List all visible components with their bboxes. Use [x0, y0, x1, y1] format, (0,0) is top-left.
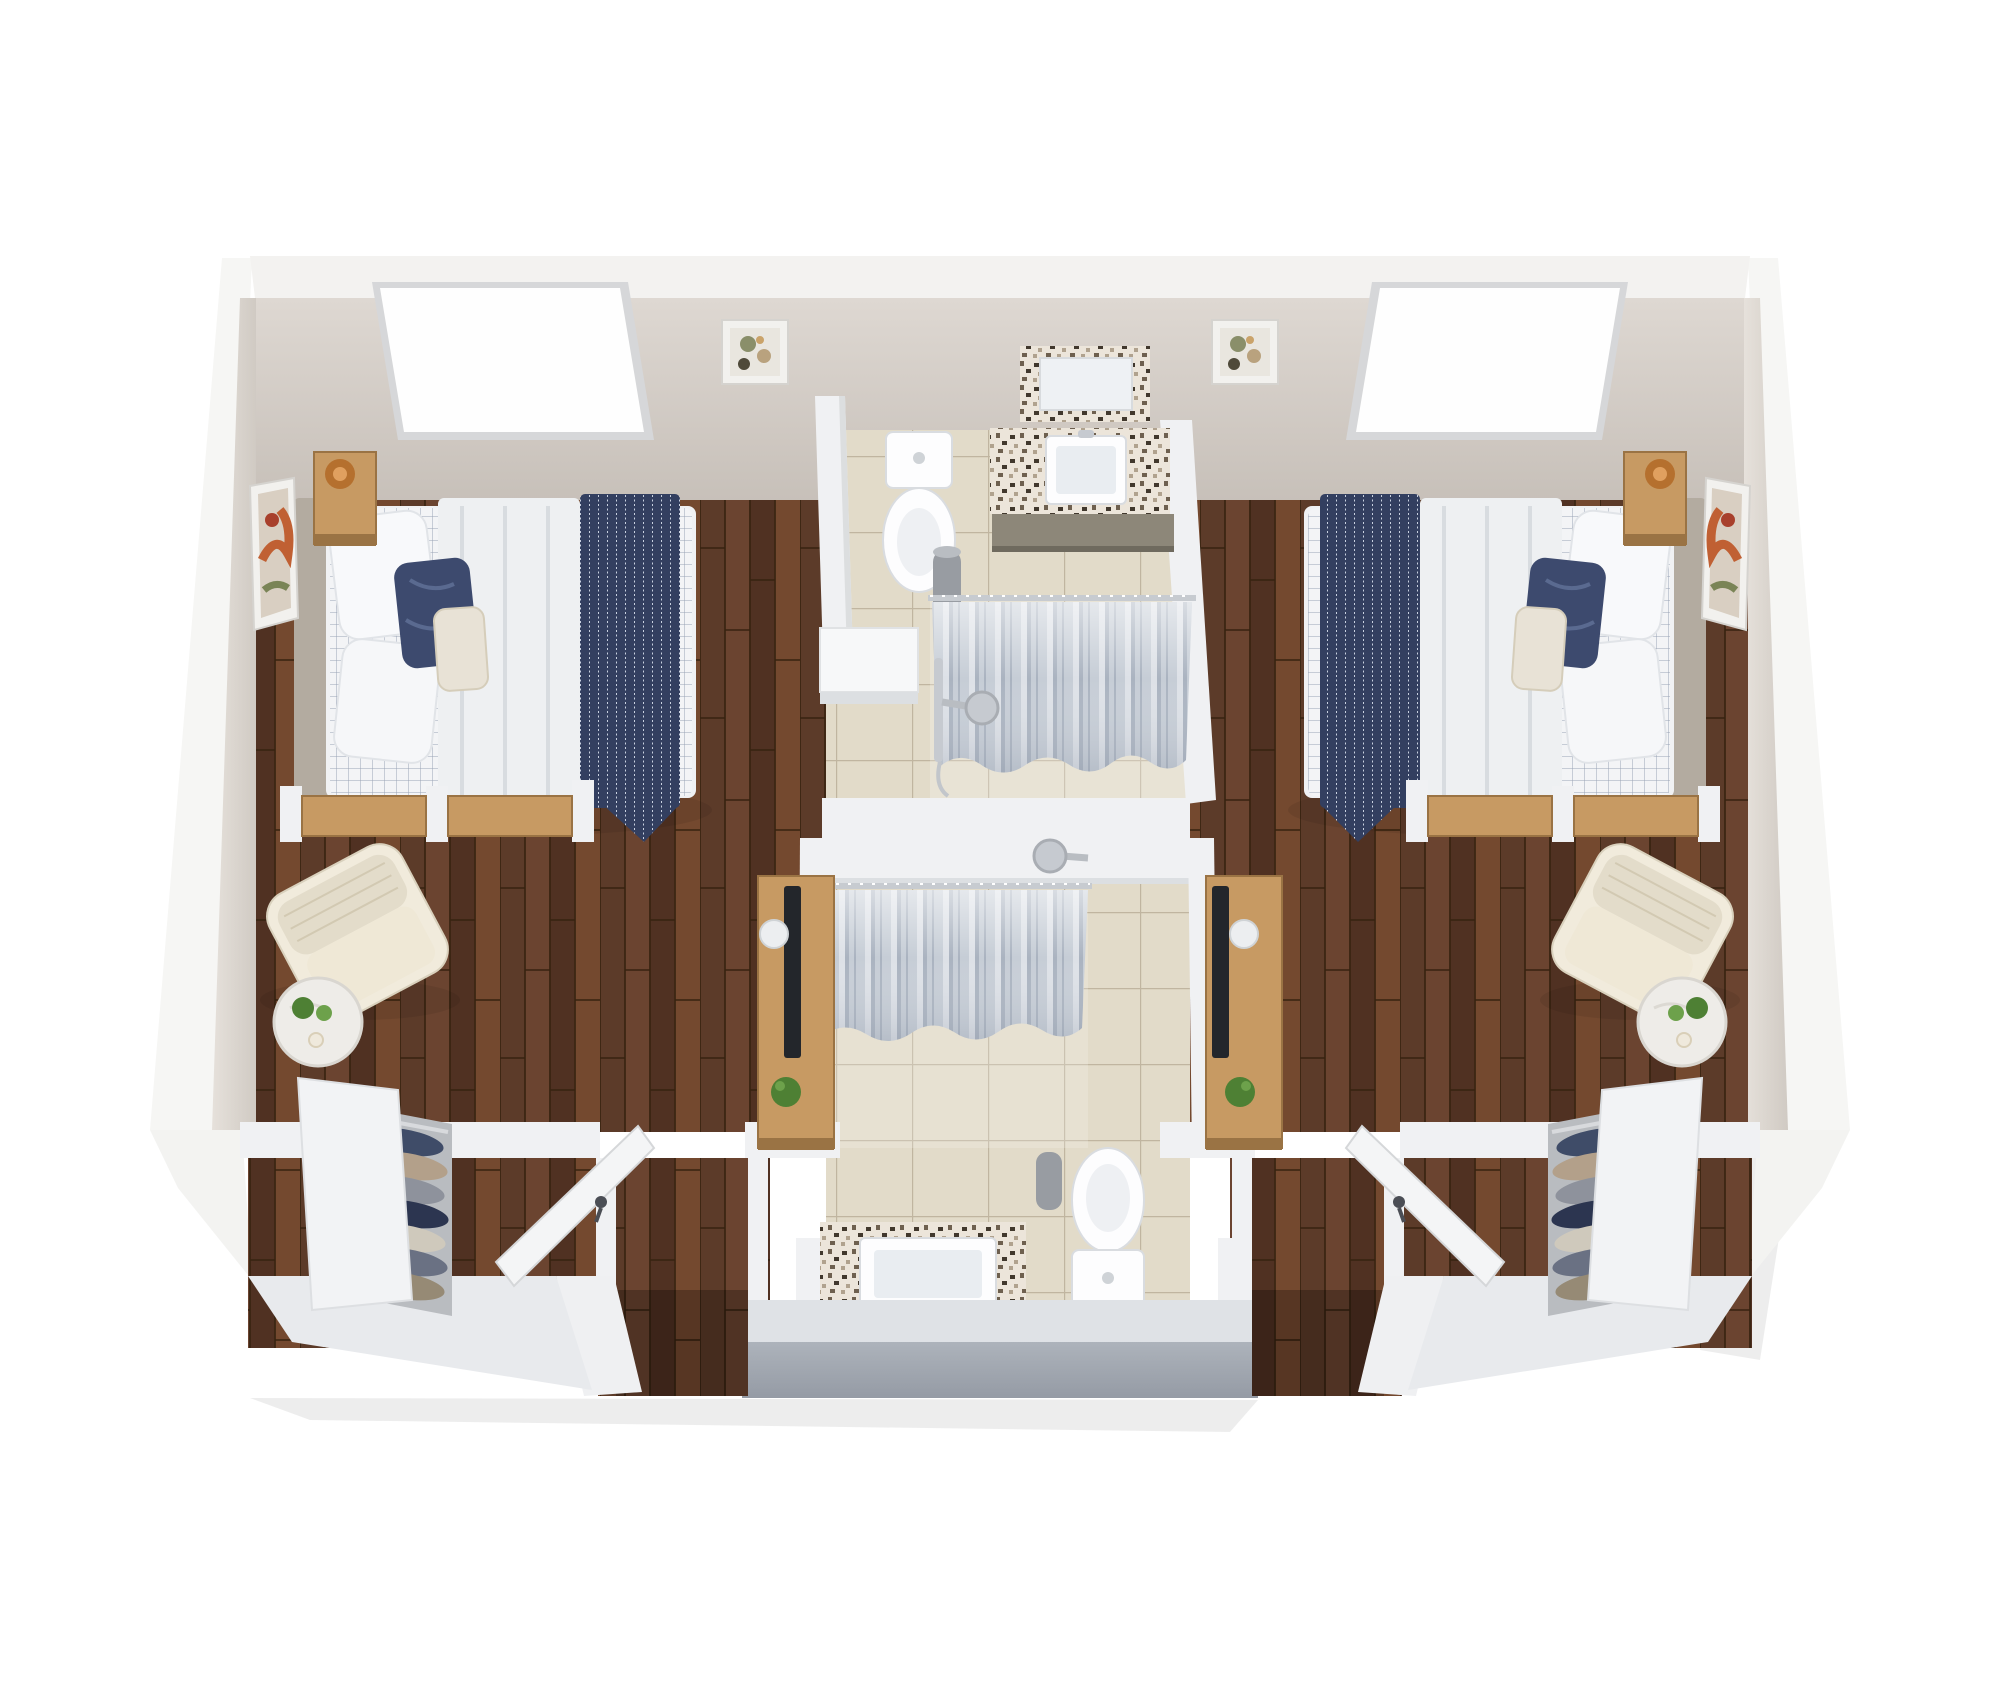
- wall-art-west: [250, 478, 298, 630]
- media-console: [758, 876, 834, 1150]
- media-console: [1206, 876, 1282, 1150]
- faucet: [1078, 430, 1094, 438]
- shower-curtain-sheen: [814, 890, 1088, 1041]
- door-handle: [595, 1196, 607, 1208]
- toilet-bottom: [1072, 1148, 1144, 1306]
- mirror: [1040, 358, 1132, 410]
- vanity-bottom-bathroom: [820, 1222, 1026, 1308]
- waste-bin: [1036, 1152, 1062, 1210]
- bench-seat: [448, 796, 572, 836]
- bench-seat: [302, 796, 426, 836]
- shower-head: [1034, 840, 1066, 872]
- wardrobe-panel: [298, 1078, 412, 1310]
- vanity-cabinet-shadow: [992, 546, 1174, 552]
- wall-art-north-left: [722, 320, 788, 384]
- skylight-window-right: [1346, 282, 1628, 440]
- potted-plant: [292, 997, 314, 1019]
- wardrobe-panel: [1588, 1078, 1702, 1310]
- navy-striped-throw: [1320, 494, 1420, 808]
- bench-seat: [1428, 796, 1552, 836]
- console-plant: [1225, 1077, 1255, 1107]
- center-dividing-wall: [822, 798, 1190, 884]
- wall-art-east: [1702, 478, 1750, 630]
- shower-head: [966, 692, 998, 724]
- bottom-vanity-side-wall: [796, 1238, 822, 1310]
- candle: [309, 1033, 323, 1047]
- decorative-plate: [1230, 920, 1258, 948]
- candle: [1677, 1033, 1691, 1047]
- vanity-cabinet: [992, 514, 1174, 550]
- bed: [1304, 494, 1706, 842]
- door-handle: [1393, 1196, 1405, 1208]
- bathroom-storage-cabinet: [820, 628, 918, 704]
- skylight-window-left: [372, 282, 654, 440]
- navy-striped-throw: [580, 494, 680, 808]
- console-plant: [771, 1077, 801, 1107]
- nightstand: [314, 452, 376, 546]
- nightstand: [1624, 452, 1686, 546]
- shower-curtain-sheen: [932, 602, 1192, 773]
- side-table: [274, 978, 362, 1066]
- bath-front-top-band: [742, 1300, 1258, 1342]
- shower-slide-bar: [934, 658, 943, 762]
- lumbar-pillow: [433, 606, 489, 691]
- potted-plant: [1686, 997, 1708, 1019]
- lumbar-pillow: [1511, 606, 1567, 691]
- tv: [784, 886, 801, 1058]
- sink-basin: [1056, 446, 1116, 494]
- bath-front-face: [742, 1342, 1258, 1398]
- bed: [294, 494, 696, 842]
- decorative-plate: [760, 920, 788, 948]
- potted-plant-small: [316, 1005, 332, 1021]
- potted-plant-small: [1668, 1005, 1684, 1021]
- bench-seat: [1574, 796, 1698, 836]
- tv: [1212, 886, 1229, 1058]
- sink-basin: [874, 1250, 982, 1298]
- side-table: [1638, 978, 1726, 1066]
- wall-art-north-right: [1212, 320, 1278, 384]
- floor-plan-render: [0, 0, 2000, 1700]
